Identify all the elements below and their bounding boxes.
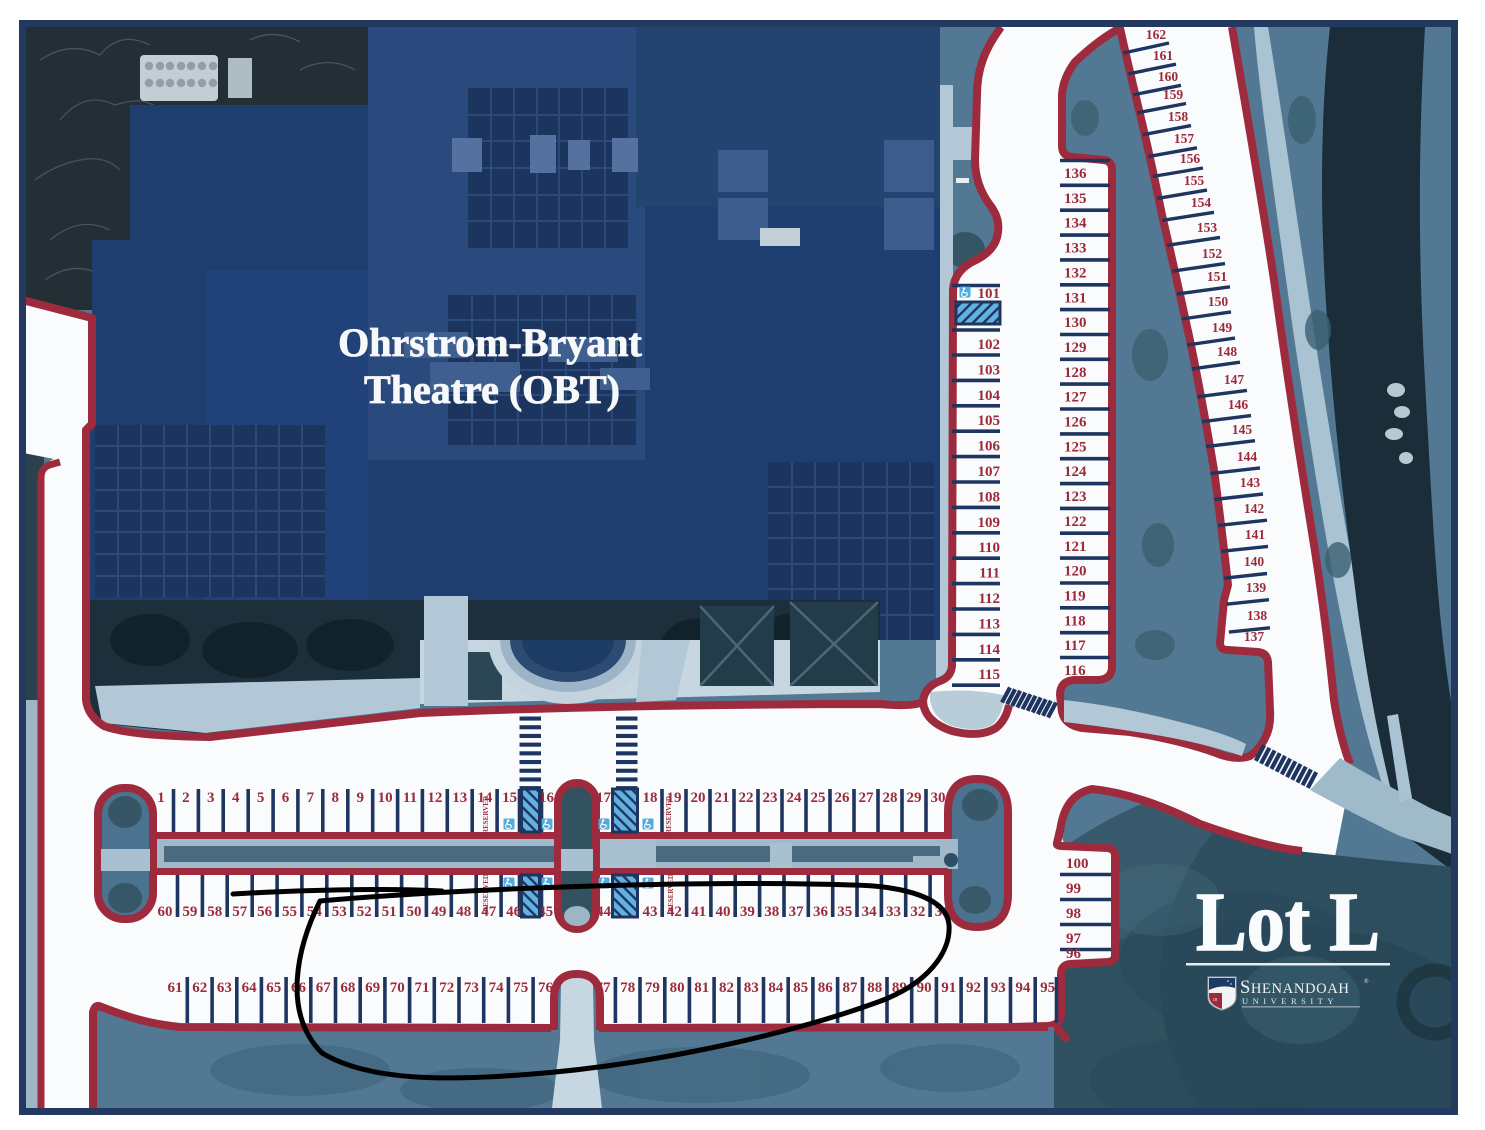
svg-text:116: 116: [1064, 663, 1086, 679]
svg-text:125: 125: [1064, 439, 1087, 455]
svg-text:103: 103: [978, 362, 1001, 378]
svg-text:79: 79: [645, 980, 660, 996]
svg-text:139: 139: [1246, 580, 1267, 595]
svg-text:85: 85: [793, 980, 808, 996]
svg-text:98: 98: [1066, 906, 1081, 922]
svg-text:27: 27: [859, 790, 875, 806]
svg-text:18: 18: [1213, 997, 1218, 1002]
svg-text:7: 7: [307, 790, 315, 806]
svg-text:35: 35: [837, 904, 852, 920]
svg-text:40: 40: [716, 904, 731, 920]
svg-text:94: 94: [1015, 980, 1031, 996]
svg-text:4: 4: [232, 790, 240, 806]
svg-text:9: 9: [356, 790, 364, 806]
svg-text:112: 112: [978, 591, 1000, 607]
svg-text:12: 12: [427, 790, 442, 806]
svg-text:140: 140: [1244, 554, 1265, 569]
svg-text:130: 130: [1064, 315, 1087, 331]
svg-text:75: 75: [513, 980, 528, 996]
svg-text:24: 24: [787, 790, 803, 806]
svg-text:58: 58: [207, 904, 222, 920]
svg-text:5: 5: [257, 790, 265, 806]
svg-text:135: 135: [1064, 191, 1087, 207]
svg-text:71: 71: [415, 980, 430, 996]
svg-text:RESERVED: RESERVED: [482, 796, 490, 834]
svg-text:100: 100: [1066, 856, 1089, 872]
svg-text:119: 119: [1064, 588, 1086, 604]
svg-text:101: 101: [978, 286, 1001, 302]
svg-text:65: 65: [266, 980, 281, 996]
svg-text:80: 80: [670, 980, 685, 996]
svg-text:32: 32: [910, 904, 925, 920]
svg-text:SHENANDOAH: SHENANDOAH: [1240, 978, 1350, 998]
svg-text:68: 68: [340, 980, 355, 996]
svg-text:67: 67: [316, 980, 332, 996]
svg-text:33: 33: [886, 904, 901, 920]
svg-text:RESERVED: RESERVED: [667, 874, 675, 912]
svg-text:155: 155: [1184, 173, 1205, 188]
svg-text:RESERVED: RESERVED: [665, 796, 673, 834]
svg-text:145: 145: [1232, 422, 1253, 437]
svg-text:UNIVERSITY: UNIVERSITY: [1242, 996, 1338, 1006]
svg-text:59: 59: [182, 904, 197, 920]
svg-text:111: 111: [979, 566, 1000, 582]
svg-text:87: 87: [843, 980, 859, 996]
svg-text:86: 86: [818, 980, 834, 996]
svg-text:22: 22: [739, 790, 754, 806]
svg-text:118: 118: [1064, 613, 1086, 629]
svg-text:115: 115: [978, 667, 1000, 683]
svg-text:46: 46: [506, 904, 522, 920]
svg-text:149: 149: [1212, 320, 1233, 335]
svg-text:152: 152: [1202, 246, 1223, 261]
svg-text:143: 143: [1240, 475, 1261, 490]
svg-text:95: 95: [1040, 980, 1055, 996]
svg-text:70: 70: [390, 980, 405, 996]
svg-text:®: ®: [1364, 978, 1369, 985]
svg-text:93: 93: [991, 980, 1006, 996]
svg-text:122: 122: [1064, 514, 1087, 530]
svg-text:109: 109: [978, 515, 1001, 531]
svg-text:129: 129: [1064, 340, 1087, 356]
svg-text:51: 51: [382, 904, 397, 920]
svg-text:150: 150: [1208, 294, 1229, 309]
svg-text:41: 41: [691, 904, 706, 920]
svg-text:142: 142: [1244, 501, 1265, 516]
svg-text:138: 138: [1247, 608, 1268, 623]
svg-text:76: 76: [538, 980, 554, 996]
svg-text:74: 74: [489, 980, 505, 996]
svg-text:56: 56: [257, 904, 273, 920]
svg-text:134: 134: [1064, 216, 1087, 232]
svg-text:136: 136: [1064, 166, 1087, 182]
svg-text:15: 15: [502, 790, 517, 806]
svg-text:36: 36: [813, 904, 829, 920]
svg-text:69: 69: [365, 980, 380, 996]
svg-text:147: 147: [1224, 372, 1245, 387]
svg-text:11: 11: [403, 790, 417, 806]
svg-text:148: 148: [1217, 344, 1238, 359]
svg-text:106: 106: [978, 439, 1001, 455]
svg-text:38: 38: [764, 904, 779, 920]
svg-text:73: 73: [464, 980, 479, 996]
svg-text:78: 78: [620, 980, 635, 996]
svg-text:133: 133: [1064, 241, 1087, 257]
svg-text:10: 10: [378, 790, 393, 806]
svg-text:61: 61: [168, 980, 183, 996]
svg-text:83: 83: [744, 980, 759, 996]
svg-text:57: 57: [232, 904, 248, 920]
svg-text:110: 110: [978, 540, 1000, 556]
svg-text:120: 120: [1064, 564, 1087, 580]
svg-text:64: 64: [242, 980, 258, 996]
svg-text:72: 72: [439, 980, 454, 996]
svg-text:34: 34: [862, 904, 878, 920]
svg-text:28: 28: [883, 790, 898, 806]
svg-text:88: 88: [867, 980, 882, 996]
svg-text:18: 18: [643, 790, 658, 806]
svg-text:153: 153: [1197, 220, 1218, 235]
svg-text:37: 37: [789, 904, 805, 920]
svg-text:158: 158: [1168, 109, 1189, 124]
svg-text:20: 20: [691, 790, 706, 806]
svg-text:154: 154: [1191, 195, 1212, 210]
svg-text:92: 92: [966, 980, 981, 996]
svg-text:55: 55: [282, 904, 297, 920]
svg-text:RESERVED: RESERVED: [482, 874, 490, 912]
svg-text:91: 91: [941, 980, 956, 996]
svg-text:26: 26: [835, 790, 851, 806]
svg-text:114: 114: [978, 642, 1000, 658]
svg-text:157: 157: [1174, 131, 1195, 146]
svg-text:132: 132: [1064, 265, 1087, 281]
svg-text:43: 43: [643, 904, 658, 920]
svg-text:52: 52: [357, 904, 372, 920]
svg-text:44: 44: [596, 904, 612, 920]
svg-text:117: 117: [1064, 638, 1086, 654]
svg-text:96: 96: [1066, 946, 1082, 962]
svg-text:8: 8: [332, 790, 340, 806]
svg-text:144: 144: [1237, 449, 1258, 464]
svg-text:107: 107: [978, 464, 1001, 480]
svg-text:121: 121: [1064, 539, 1087, 555]
svg-text:104: 104: [978, 388, 1001, 404]
svg-text:113: 113: [978, 616, 1000, 632]
svg-text:81: 81: [694, 980, 709, 996]
svg-text:23: 23: [763, 790, 778, 806]
svg-text:124: 124: [1064, 464, 1087, 480]
svg-text:30: 30: [931, 790, 946, 806]
svg-text:99: 99: [1066, 881, 1081, 897]
svg-text:82: 82: [719, 980, 734, 996]
svg-text:105: 105: [978, 413, 1001, 429]
svg-text:161: 161: [1153, 48, 1174, 63]
svg-text:62: 62: [192, 980, 207, 996]
svg-text:156: 156: [1180, 151, 1201, 166]
svg-text:127: 127: [1064, 390, 1087, 406]
svg-text:162: 162: [1146, 27, 1167, 42]
svg-text:25: 25: [811, 790, 826, 806]
svg-text:151: 151: [1207, 269, 1228, 284]
svg-text:1: 1: [157, 790, 165, 806]
svg-text:39: 39: [740, 904, 755, 920]
svg-text:137: 137: [1244, 629, 1265, 644]
svg-text:Theatre (OBT): Theatre (OBT): [364, 367, 620, 412]
svg-text:21: 21: [715, 790, 730, 806]
svg-text:29: 29: [907, 790, 922, 806]
svg-text:17: 17: [596, 790, 612, 806]
svg-text:97: 97: [1066, 931, 1082, 947]
svg-text:Lot L: Lot L: [1196, 876, 1380, 969]
svg-text:126: 126: [1064, 415, 1087, 431]
svg-text:131: 131: [1064, 290, 1087, 306]
svg-text:53: 53: [332, 904, 347, 920]
svg-text:16: 16: [539, 790, 555, 806]
svg-text:141: 141: [1245, 527, 1266, 542]
svg-text:84: 84: [768, 980, 784, 996]
svg-text:123: 123: [1064, 489, 1087, 505]
svg-text:63: 63: [217, 980, 232, 996]
svg-text:108: 108: [978, 489, 1001, 505]
svg-text:128: 128: [1064, 365, 1087, 381]
svg-text:146: 146: [1228, 397, 1249, 412]
svg-text:6: 6: [282, 790, 290, 806]
svg-text:50: 50: [407, 904, 422, 920]
svg-text:160: 160: [1158, 69, 1179, 84]
svg-text:77: 77: [596, 980, 612, 996]
svg-text:2: 2: [182, 790, 190, 806]
svg-text:49: 49: [431, 904, 446, 920]
svg-text:Ohrstrom-Bryant: Ohrstrom-Bryant: [338, 320, 642, 365]
svg-text:48: 48: [456, 904, 471, 920]
svg-text:159: 159: [1163, 87, 1184, 102]
svg-text:102: 102: [978, 337, 1001, 353]
svg-text:60: 60: [158, 904, 173, 920]
svg-text:13: 13: [452, 790, 467, 806]
svg-text:3: 3: [207, 790, 215, 806]
